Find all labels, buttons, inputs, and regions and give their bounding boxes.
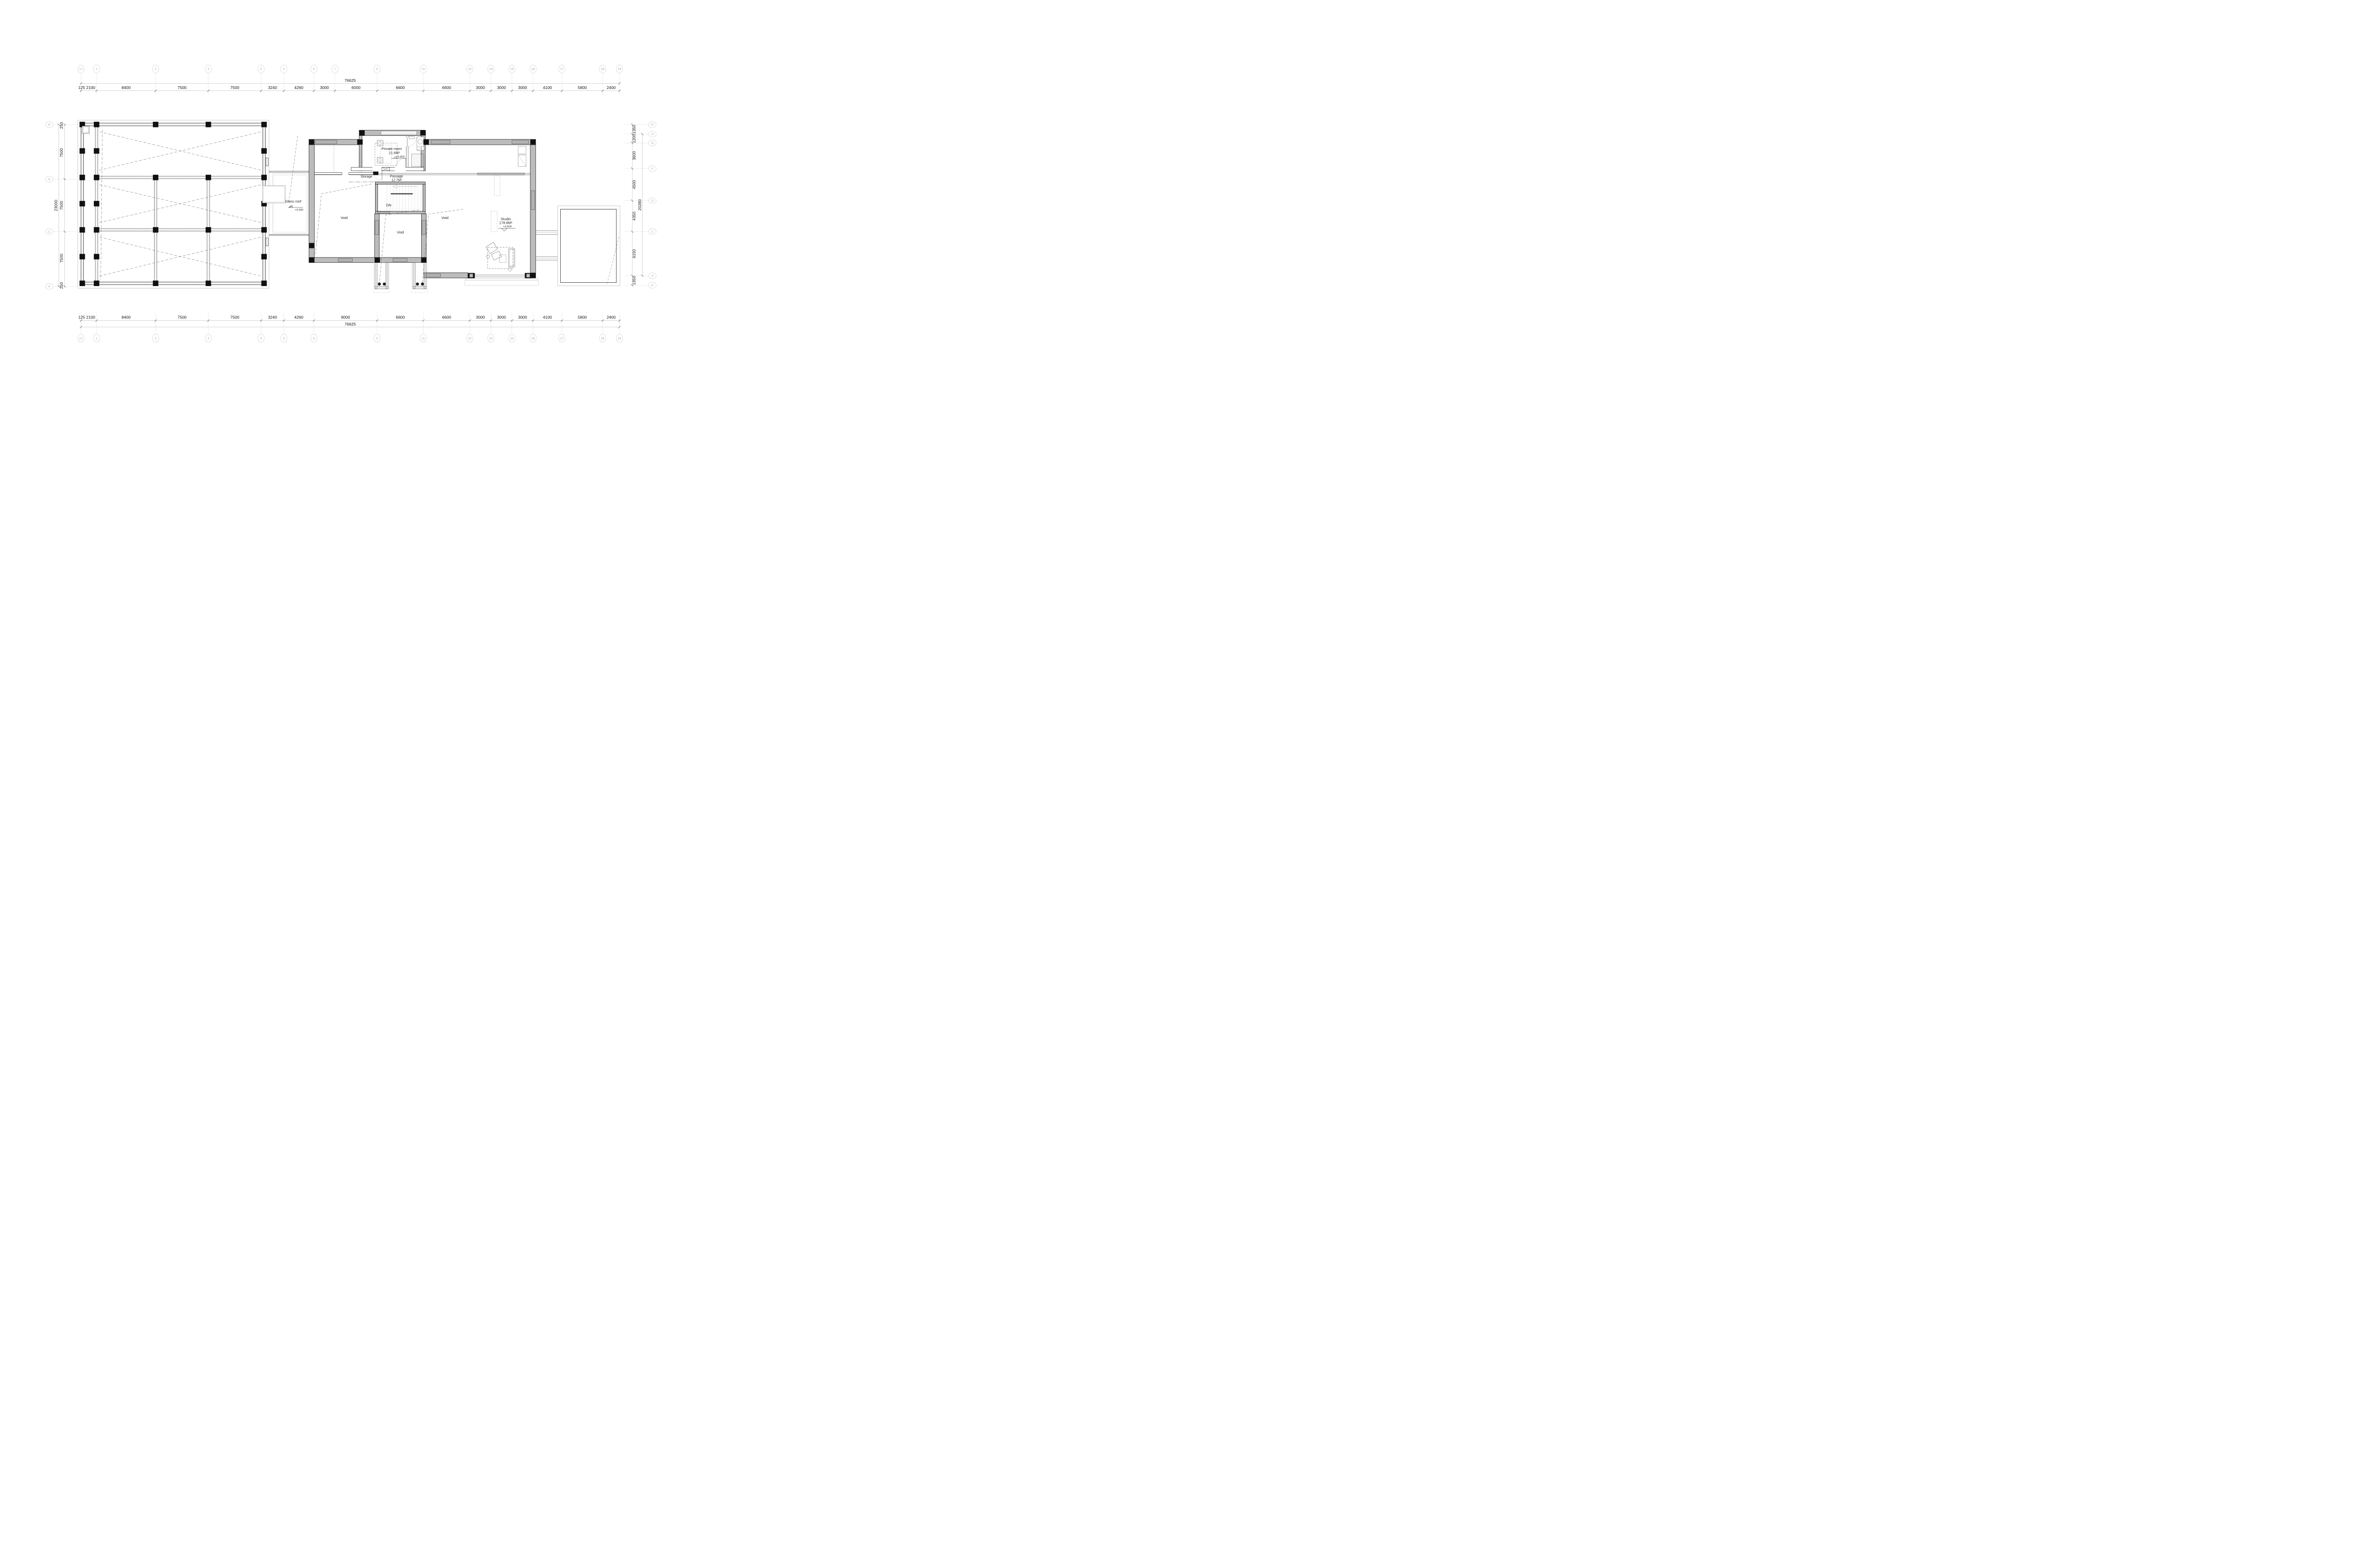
grid-dimensions-top: 1/11234567911131415161718191252100840075… — [78, 65, 623, 94]
column — [357, 139, 363, 145]
grid-bubble-label: 2 — [155, 337, 157, 340]
dim-label: 3000 — [476, 85, 485, 90]
dim-label: 6600 — [396, 85, 405, 90]
storage-label: Storage — [361, 175, 373, 178]
passage-label: Passage — [390, 175, 403, 178]
dim-label: 4100 — [543, 315, 552, 320]
column — [79, 175, 85, 180]
column — [153, 227, 159, 233]
roof-opening — [262, 186, 286, 203]
grid-bubble-label: 13 — [468, 68, 472, 71]
skylight — [82, 126, 89, 134]
grid-bubble-label: 3 — [208, 68, 209, 71]
private-room-level: +3.600 — [396, 156, 405, 159]
grid-bubble-label: 11 — [422, 68, 425, 71]
grid-bubble-label: H' — [651, 123, 654, 127]
level-mark-glass-roof — [288, 206, 303, 208]
dim-label: 7500 — [59, 201, 64, 210]
grid-bubble-label: C — [49, 230, 51, 234]
dim-label: 6000 — [351, 85, 360, 90]
terrace — [558, 206, 620, 286]
column — [94, 175, 99, 180]
grid-bubble-label: 9 — [376, 337, 378, 340]
dim-label: 6600 — [442, 315, 451, 320]
grid-bubble-label: 6 — [313, 68, 315, 71]
column — [79, 280, 85, 286]
column — [261, 175, 267, 180]
stair — [387, 185, 422, 211]
grid-bubble-label: 2 — [155, 68, 157, 71]
grid-bubble-label: H' — [48, 123, 51, 127]
column — [206, 122, 211, 128]
shelf — [409, 137, 414, 139]
glass-roof-level: +3.600 — [295, 208, 303, 211]
dim-label: 3240 — [268, 315, 277, 320]
roof-window-east-2 — [266, 238, 268, 246]
column — [261, 122, 267, 128]
column — [94, 201, 99, 207]
column — [153, 175, 159, 180]
concrete-walls — [309, 130, 535, 278]
toilet-bowl — [416, 147, 421, 150]
level-mark-studio — [498, 228, 516, 231]
column — [530, 273, 536, 278]
grid-bubble-label: E — [49, 178, 50, 181]
dim-label: 7500 — [230, 315, 239, 320]
planter-2 — [411, 262, 427, 292]
column — [261, 280, 267, 286]
dim-label: 125 — [78, 85, 85, 90]
grid-bubble-label: 1 — [96, 337, 98, 340]
grid-bubble-label: 19 — [618, 337, 621, 340]
column — [530, 139, 536, 145]
grid-bubble-label: 15 — [510, 68, 514, 71]
grid-bubble-label: C — [651, 230, 654, 234]
grid-bubble-label: 1/1 — [79, 68, 82, 71]
dim-label: 2400 — [606, 315, 615, 320]
dim-label: 7500 — [178, 85, 187, 90]
glass-roof-corridor — [262, 136, 309, 236]
glass-roof-panel — [273, 174, 307, 233]
dim-label: 4260 — [294, 85, 303, 90]
right-building — [309, 130, 538, 293]
column — [79, 201, 85, 207]
dim-label: 4350 — [632, 211, 636, 220]
grid-bubble-label: 4 — [260, 68, 262, 71]
grid-bubble-label: 18 — [601, 68, 605, 71]
column — [309, 243, 315, 248]
column — [94, 254, 99, 259]
floor-plan-drawing: 1/11234567911131415161718191252100840075… — [0, 0, 697, 389]
grid-bubble-label: A' — [651, 284, 654, 287]
column — [79, 148, 85, 154]
column — [79, 254, 85, 259]
dim-label: 5800 — [578, 315, 587, 320]
dim-label: 2400 — [606, 85, 615, 90]
column — [375, 258, 380, 263]
void-label-3: Void — [441, 216, 448, 220]
overall-dim-label: 20280 — [637, 199, 642, 210]
column — [206, 280, 211, 286]
dim-label: 250 — [59, 282, 64, 288]
overall-dim-label: 23000 — [53, 200, 58, 211]
ceiling-drain-1 — [377, 140, 383, 146]
island-dashed — [491, 211, 497, 232]
bridge-1 — [535, 231, 557, 235]
grid-bubble-label: D — [651, 199, 654, 203]
column — [206, 227, 211, 233]
dim-label: 3000 — [518, 85, 527, 90]
dim-label: 3240 — [268, 85, 277, 90]
studio-label: Studio — [501, 217, 511, 221]
armchair-2 — [491, 251, 501, 260]
dim-label: 6600 — [442, 85, 451, 90]
counter-dashed — [495, 176, 500, 196]
grid-bubble-label: 17 — [560, 68, 564, 71]
grid-bubble-label: 3 — [208, 337, 209, 340]
grid-dimensions-left: H'ECA'25075007500750025023000 — [46, 122, 77, 289]
grid-bubble-label: 14 — [489, 68, 493, 71]
grid-bubble-label: 4 — [260, 337, 262, 340]
void-label-1: Void — [341, 216, 348, 220]
dim-label: 3600 — [632, 151, 636, 160]
dim-label: 8400 — [121, 315, 130, 320]
column — [261, 254, 267, 259]
grid-bubble-label: 1/1 — [79, 337, 82, 340]
ceiling-drain-2 — [377, 157, 383, 163]
column — [94, 122, 99, 128]
column — [423, 139, 429, 145]
column — [79, 227, 85, 233]
dim-label: 7500 — [178, 315, 187, 320]
floor-plan-sheet: 1/11234567911131415161718191252100840075… — [0, 0, 697, 389]
column — [421, 258, 427, 263]
column — [94, 227, 99, 233]
dim-label: 3000 — [518, 315, 527, 320]
grid-bubble-label: 13 — [468, 337, 472, 340]
toilet-tank — [421, 146, 424, 150]
lounge-furniture — [486, 242, 515, 271]
dim-label: 3000 — [476, 315, 485, 320]
grid-bubble-label: 9 — [376, 68, 378, 71]
private-room-label: Private room — [382, 147, 402, 151]
grid-bubble-label: 7 — [334, 68, 336, 71]
grid-bubble-label: A' — [48, 285, 50, 288]
column — [261, 227, 267, 233]
dim-label: 3000 — [497, 85, 506, 90]
column — [206, 175, 211, 180]
dim-label: 7500 — [59, 148, 64, 157]
grid-bubble-label: H — [651, 133, 654, 136]
column — [153, 280, 159, 286]
passage-area: 12.7M² — [392, 178, 402, 182]
grid-bubble-label: 14 — [489, 337, 493, 340]
dim-label: 125 — [78, 315, 85, 320]
studio-area: 178.8M² — [499, 220, 513, 225]
column — [94, 280, 99, 286]
grid-bubble-label: 5 — [283, 68, 285, 71]
columns — [79, 122, 267, 286]
column — [309, 258, 315, 263]
dim-label: 9000 — [341, 315, 350, 320]
private-room-area: 21.6M² — [389, 150, 400, 155]
void-label-2: Void — [397, 230, 404, 234]
dim-label: 6150 — [632, 249, 636, 258]
left-building — [78, 120, 269, 288]
grid-bubble-label: G — [651, 142, 654, 145]
grid-bubble-label: F — [652, 167, 654, 170]
dim-label: 2100 — [86, 315, 95, 320]
dim-label: 1350 — [632, 125, 636, 134]
dim-label: 7500 — [230, 85, 239, 90]
dim-label: 4500 — [632, 180, 636, 189]
shower-floor — [411, 154, 424, 167]
grid-bubble-label: 1 — [96, 68, 98, 71]
armchair-1 — [486, 242, 497, 254]
exterior-wall — [81, 123, 265, 285]
bridge-2 — [535, 257, 557, 260]
dim-label: 3000 — [497, 315, 506, 320]
roof-outline — [78, 120, 269, 288]
dim-label: 6600 — [396, 315, 405, 320]
column — [153, 122, 159, 128]
wardrobe-upper — [518, 146, 526, 154]
stair-dn-label: DN — [386, 203, 391, 207]
floor-lamp — [508, 268, 512, 271]
grid-bubble-label: 15 — [510, 337, 514, 340]
grid-bubble-label: 6 — [313, 337, 315, 340]
grid-bubble-label: 17 — [560, 337, 564, 340]
dim-label: 3000 — [320, 85, 329, 90]
dim-label: 5800 — [578, 85, 587, 90]
column — [420, 130, 426, 136]
rug — [488, 247, 513, 268]
ridge-dashed-line — [289, 136, 298, 203]
roof-slope-dashed-lines — [99, 130, 261, 280]
overall-dim-label: 76625 — [345, 322, 356, 327]
dim-label: 7500 — [59, 254, 64, 263]
grid-bubble-label: 18 — [601, 337, 605, 340]
coffee-table — [500, 255, 506, 262]
grid-bubble-label: 11 — [422, 337, 425, 340]
column — [261, 148, 267, 154]
dim-label: 8400 — [121, 85, 130, 90]
stair-direction-arrow — [393, 185, 397, 188]
dim-label: 1350 — [632, 276, 636, 285]
void-dashed-lines — [315, 184, 463, 285]
grid-bubble-label: 5 — [283, 337, 285, 340]
grid-bubble-label: 16 — [531, 68, 535, 71]
dim-label: 4100 — [543, 85, 552, 90]
overall-dim-label: 76625 — [345, 78, 356, 83]
glass-roof-label: Glass roof — [285, 199, 302, 203]
studio-level: +3.600 — [503, 225, 512, 228]
column — [94, 148, 99, 154]
dim-label: 1200 — [632, 134, 636, 143]
grid-dimensions-right: H'HGFDCAA'135012003600450043506150135020… — [624, 122, 656, 288]
partition-wall-a — [314, 171, 378, 175]
grid-dimensions-bottom: 1/11234569111314151617181912521008400750… — [78, 312, 623, 342]
column — [359, 130, 365, 136]
grid-bubble-label: 16 — [531, 337, 535, 340]
roof-window-east-1 — [266, 158, 268, 166]
column — [309, 139, 315, 145]
planter-1 — [373, 262, 389, 292]
dim-label: 2100 — [86, 85, 95, 90]
south-glazing — [465, 273, 539, 285]
grid-bubble-label: 19 — [618, 68, 621, 71]
dim-label: 4260 — [294, 315, 303, 320]
